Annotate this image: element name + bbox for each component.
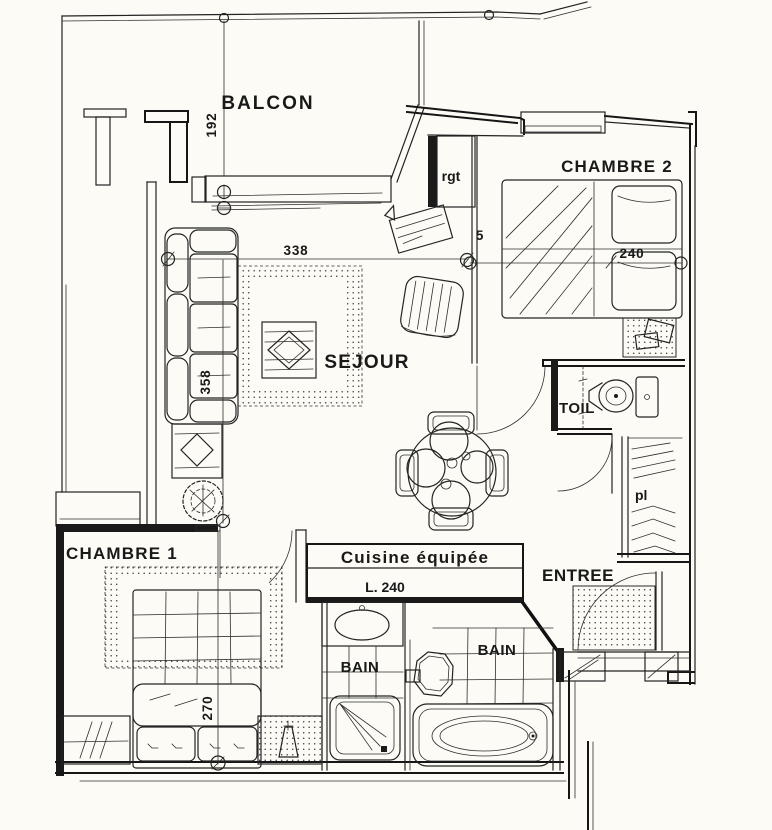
floor-plan: BALCON CHAMBRE 2 rgt SEJOUR TOIL pl CHAM… [0,0,772,830]
chambre2-nightstand [623,318,676,357]
chambre2-label: CHAMBRE 2 [561,157,673,176]
toil-label: TOIL [559,400,595,417]
dim-240: 240 [620,246,645,261]
rgt-label: rgt [442,168,461,184]
chambre1-nightstand [258,716,322,764]
dim-5: 5 [476,228,484,243]
dim-338: 338 [284,243,309,258]
bain-right-label: BAIN [478,642,517,659]
sejour-label: SEJOUR [324,352,409,373]
dim-192: 192 [204,113,219,138]
dim-358: 358 [198,370,213,395]
chambre1-label: CHAMBRE 1 [66,544,178,563]
floor-plan-page: BALCON CHAMBRE 2 rgt SEJOUR TOIL pl CHAM… [0,0,772,830]
bain-left-label: BAIN [341,659,380,676]
cuisine-label: Cuisine équipée [341,548,489,567]
pl-label: pl [635,487,647,503]
cuisine-length-label: L. 240 [365,579,405,595]
balcon-label: BALCON [221,93,314,114]
sejour-rug [238,266,362,406]
chambre1-rug [105,567,282,668]
paper-background [0,0,772,830]
entree-label: ENTREE [542,566,614,585]
dim-270: 270 [200,696,215,721]
